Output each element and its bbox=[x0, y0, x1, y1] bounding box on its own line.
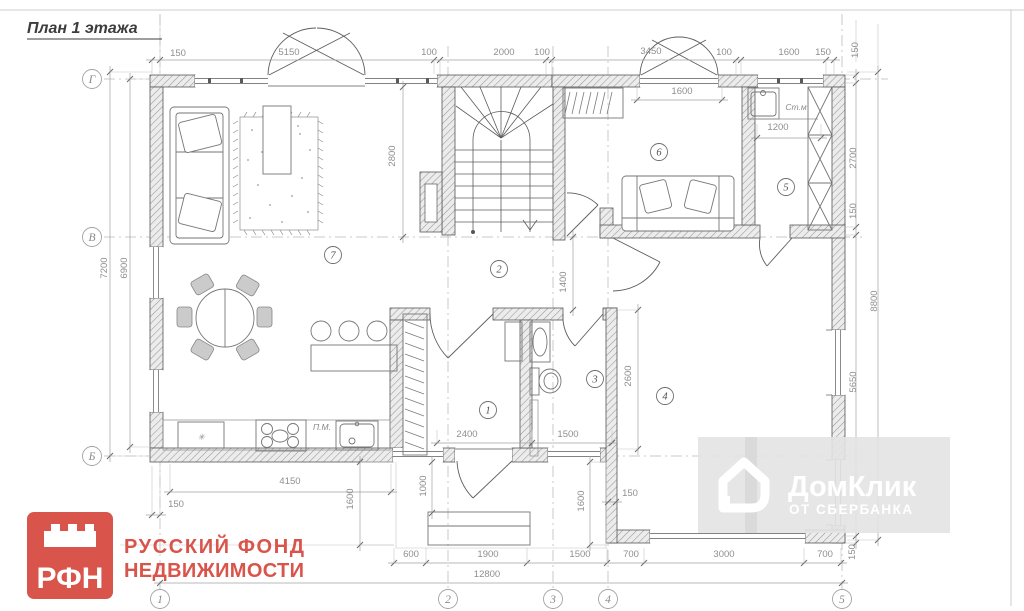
dimension-label: 1600 bbox=[671, 86, 692, 97]
room-number: 7 bbox=[330, 251, 336, 262]
grid-axis-label: 3 bbox=[549, 594, 556, 606]
dimension-label: 150 bbox=[848, 203, 859, 219]
dimension-label: 700 bbox=[623, 549, 639, 560]
grid-axis-label: Б bbox=[88, 451, 96, 463]
dimension-label: 8800 bbox=[869, 290, 880, 311]
staircase bbox=[455, 87, 553, 234]
drawing-title: План 1 этажа bbox=[27, 20, 162, 39]
domclick-watermark: ДомКлик ОТ СБЕРБАНКА bbox=[698, 437, 950, 533]
dimension-label: 150 bbox=[170, 48, 186, 59]
floor-plan-sheet: 1505150100200010034501001600150150270015… bbox=[0, 0, 1024, 611]
dimension-label: 100 bbox=[534, 47, 550, 58]
shaft-xstrip bbox=[808, 87, 832, 230]
dimension-label: 1600 bbox=[345, 488, 356, 509]
dimension-label: 1900 bbox=[477, 549, 498, 560]
bathroom-fixtures bbox=[505, 322, 561, 456]
dimension-label: 1200 bbox=[767, 122, 788, 133]
dimension-label: 100 bbox=[716, 47, 732, 58]
dimension-label: 3000 bbox=[713, 549, 734, 560]
porch-step bbox=[428, 512, 530, 545]
dimension-label: 1500 bbox=[569, 549, 590, 560]
sofa-room6 bbox=[622, 176, 734, 231]
floor-plan-drawing: 1505150100200010034501001600150150270015… bbox=[0, 0, 1024, 611]
dimension-label: 1000 bbox=[418, 475, 429, 496]
dimension-label: 1400 bbox=[558, 271, 569, 292]
room-number: 1 bbox=[485, 406, 490, 417]
dimension-label: 1600 bbox=[778, 47, 799, 58]
rfn-logo: РФН РУССКИЙ ФОНД НЕДВИЖИМОСТИ bbox=[27, 512, 304, 599]
coffee-table bbox=[263, 106, 291, 174]
dimension-label: 150 bbox=[815, 47, 831, 58]
fixture-label: ✳ bbox=[197, 432, 205, 442]
utility-sink bbox=[748, 88, 818, 119]
dimension-label: 1600 bbox=[576, 490, 587, 511]
dimension-label: 2400 bbox=[456, 429, 477, 440]
dimension-label: 5150 bbox=[278, 47, 299, 58]
coat-rack bbox=[563, 88, 623, 118]
dining-table bbox=[177, 273, 272, 361]
dimension-label: 700 bbox=[817, 549, 833, 560]
dimension-label: 150 bbox=[847, 544, 858, 560]
rfn-line1: РУССКИЙ ФОНД bbox=[124, 534, 304, 558]
dimension-label: 5650 bbox=[848, 371, 859, 392]
shaft-niche bbox=[425, 184, 437, 222]
rfn-line2: НЕДВИЖИМОСТИ bbox=[124, 560, 304, 582]
watermark-title: ДомКлик bbox=[788, 471, 917, 503]
dimension-label: 4150 bbox=[279, 476, 300, 487]
dimension-label: 150 bbox=[168, 499, 184, 510]
dimension-label: 2000 bbox=[493, 47, 514, 58]
grid-axis-label: 5 bbox=[839, 594, 845, 606]
grid-axis-label: 4 bbox=[605, 594, 611, 606]
castle-icon bbox=[44, 524, 96, 547]
dimension-label: 600 bbox=[403, 549, 419, 560]
dimension-label: 7200 bbox=[99, 257, 110, 278]
cabinet bbox=[505, 322, 522, 361]
dimension-label: 100 bbox=[421, 47, 437, 58]
room-number: 3 bbox=[591, 375, 597, 386]
grid-axis-label: Г bbox=[88, 74, 96, 86]
page-title: План 1 этажа bbox=[27, 20, 138, 37]
rug bbox=[233, 106, 323, 235]
sofa-living bbox=[170, 107, 229, 244]
room-number: 6 bbox=[656, 148, 662, 159]
room-number: 5 bbox=[783, 183, 788, 194]
room-number: 2 bbox=[496, 265, 502, 276]
dimension-label: 2600 bbox=[623, 365, 634, 386]
dimension-label: 2800 bbox=[387, 145, 398, 166]
rfn-abbr: РФН bbox=[37, 562, 104, 595]
dimension-label: 150 bbox=[622, 488, 638, 499]
dimension-label: 12800 bbox=[474, 569, 500, 580]
grid-axis-label: В bbox=[88, 232, 95, 244]
wardrobe-hall bbox=[403, 314, 427, 455]
dimension-label: 2700 bbox=[848, 147, 859, 168]
bar-counter bbox=[311, 321, 397, 371]
porch bbox=[396, 462, 606, 548]
stair-start-dot bbox=[471, 230, 475, 234]
grid-axis-label: 1 bbox=[157, 594, 163, 606]
dimension-label: 6900 bbox=[119, 257, 130, 278]
dimension-label: 1500 bbox=[557, 429, 578, 440]
dimension-label: 150 bbox=[850, 42, 861, 58]
watermark-subtitle: ОТ СБЕРБАНКА bbox=[789, 502, 914, 517]
dimension-label: 3450 bbox=[640, 46, 661, 57]
room-number: 4 bbox=[662, 392, 668, 403]
fixture-label: П.М. bbox=[313, 422, 331, 432]
grid-axis-label: 2 bbox=[445, 594, 451, 606]
fixture-label: Ст.м bbox=[785, 102, 806, 112]
